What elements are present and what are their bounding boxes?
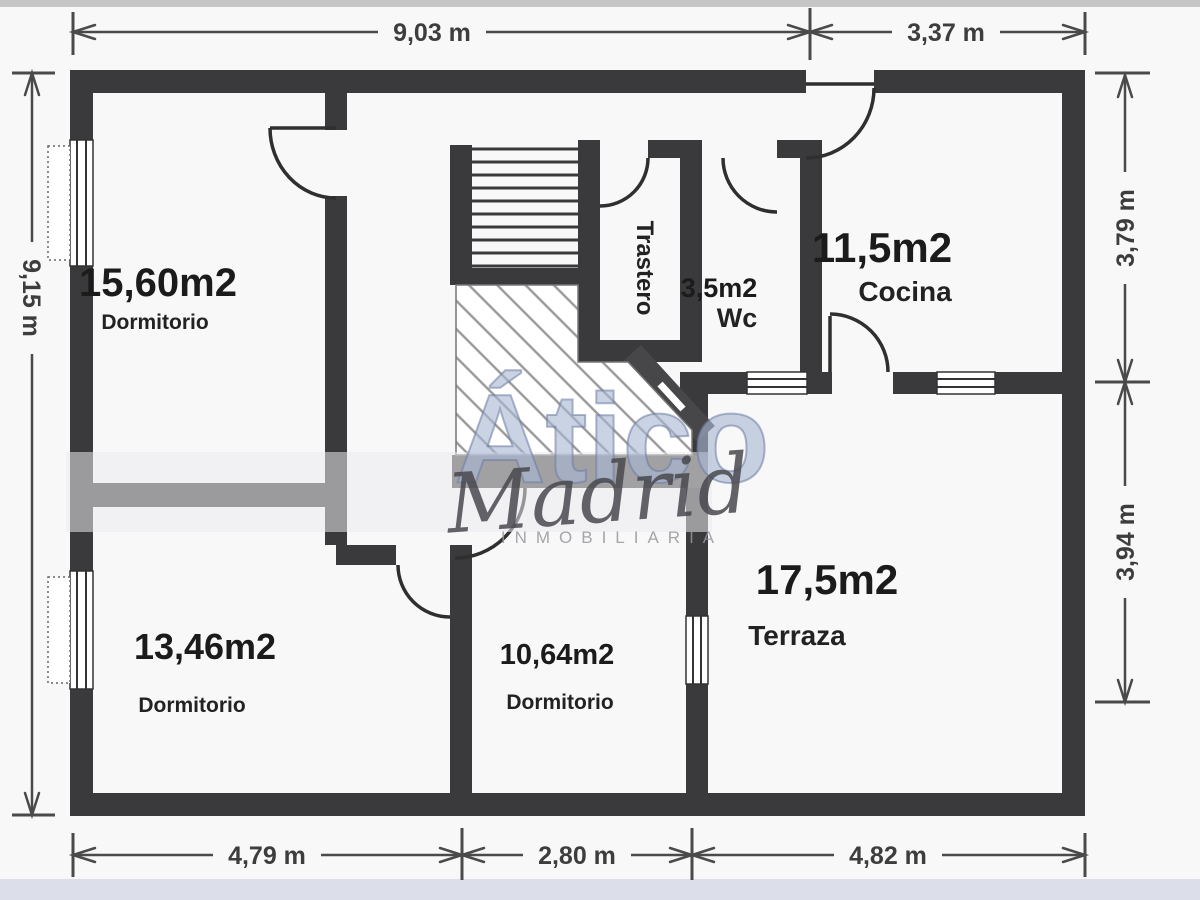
room-name: Dormitorio	[101, 311, 208, 334]
floorplan-page: 15,60m2 Dormitorio 13,46m2 Dormitorio 10…	[0, 0, 1200, 900]
room-area: 15,60m2	[79, 261, 237, 305]
window-terraza	[686, 616, 708, 684]
photo-edge-bottom	[0, 879, 1200, 900]
room-name: Cocina	[858, 276, 952, 307]
dim-bottom-right: 4,82 m	[849, 842, 927, 870]
dim-bottom-middle: 2,80 m	[538, 842, 616, 870]
room-name: Trastero	[631, 221, 658, 316]
window-dormitorio-grande	[48, 140, 93, 266]
room-name: Dormitorio	[138, 694, 245, 717]
window-dormitorio-medio	[48, 571, 93, 689]
window-cocina	[937, 372, 995, 394]
dim-height-total: 9,15 m	[17, 259, 45, 337]
label-trastero: Trastero	[631, 221, 658, 316]
photo-edge-top	[0, 0, 1200, 7]
dim-bottom-left: 4,79 m	[228, 842, 306, 870]
room-area: 10,64m2	[500, 639, 615, 671]
floor-plan: 15,60m2 Dormitorio 13,46m2 Dormitorio 10…	[0, 0, 1200, 900]
dim-right-upper: 3,79 m	[1112, 189, 1140, 267]
room-area: 11,5m2	[812, 224, 952, 271]
room-name: Wc	[717, 303, 758, 333]
room-area: 13,46m2	[134, 626, 276, 667]
watermark-tagline: INMOBILIARIA	[501, 528, 723, 547]
room-area: 3,5m2	[681, 273, 758, 303]
dim-width-right: 3,37 m	[907, 19, 985, 47]
room-area: 17,5m2	[756, 556, 898, 603]
room-name: Terraza	[748, 620, 846, 651]
room-name: Dormitorio	[506, 691, 613, 714]
dim-right-lower: 3,94 m	[1112, 503, 1140, 581]
dim-width-left: 9,03 m	[393, 19, 471, 47]
